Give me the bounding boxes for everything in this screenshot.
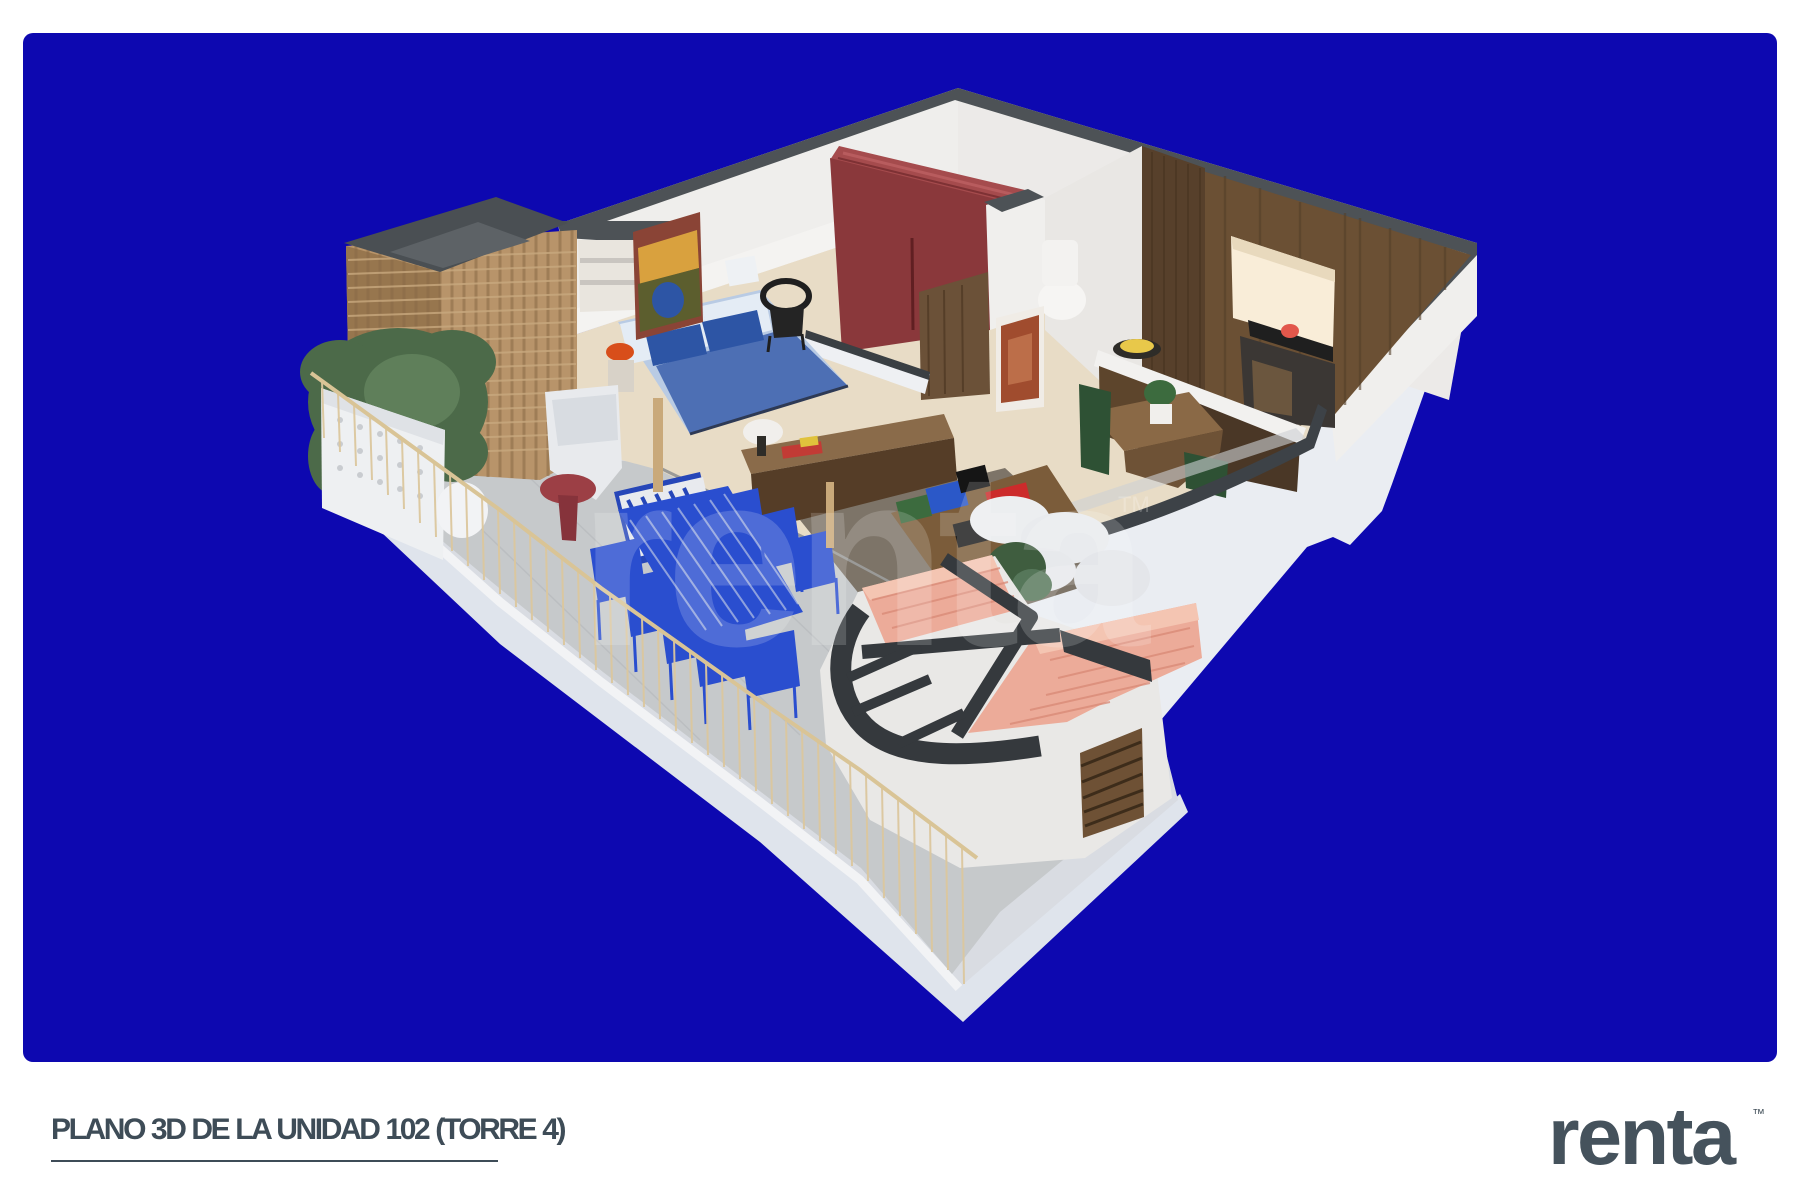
svg-text:TM: TM [1118,492,1150,517]
svg-text:renta: renta [1548,1092,1737,1181]
svg-text:™: ™ [1752,1106,1765,1121]
svg-text:renta: renta [578,419,1151,698]
